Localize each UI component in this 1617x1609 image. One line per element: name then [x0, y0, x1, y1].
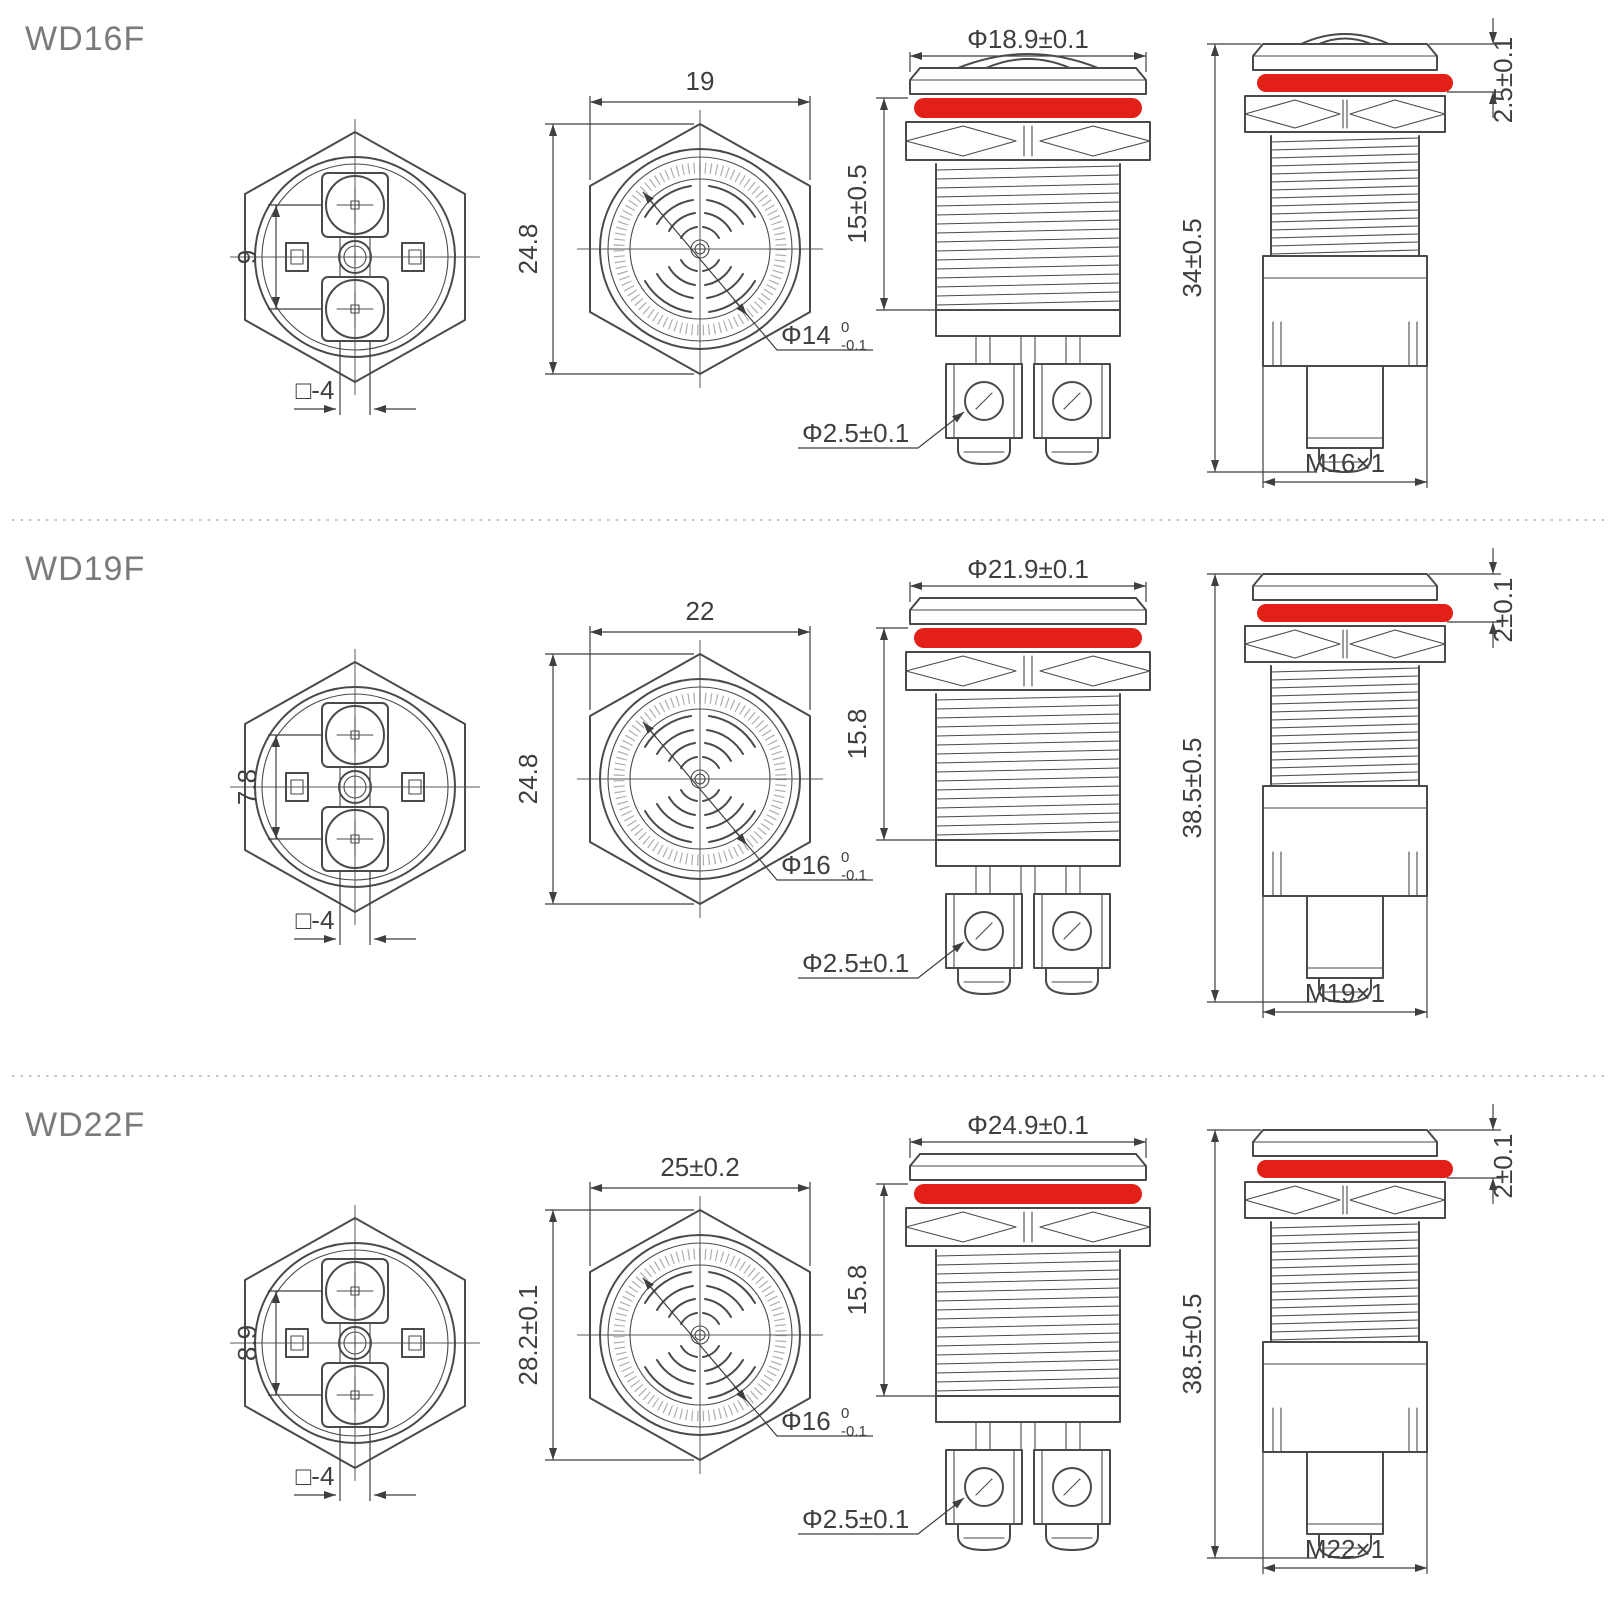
side-view-drawing	[798, 52, 1150, 464]
profile-view-drawing	[1207, 548, 1501, 1018]
dim-sound-hole-dia: Φ16	[781, 1406, 831, 1436]
profile-view-drawing	[1207, 1104, 1501, 1574]
model-title: WD16F	[25, 20, 145, 58]
dim-head-height: 2±0.1	[1488, 1134, 1518, 1199]
dim-width-across-flats: 25±0.2	[660, 1152, 739, 1182]
dim-thread-spec: M19×1	[1305, 978, 1385, 1008]
dim-head-height: 2.5±0.1	[1488, 37, 1518, 124]
model-title: WD22F	[25, 1106, 145, 1144]
dim-terminal-screw-dia: Φ2.5±0.1	[802, 948, 909, 978]
dim-terminal-pitch: 7.8	[232, 769, 262, 805]
dim-total-height: 34±0.5	[1177, 218, 1207, 297]
dim-corner-height: 24.8	[513, 224, 543, 275]
dim-head-height: 2±0.1	[1488, 578, 1518, 643]
dim-sound-hole-dia: Φ16	[781, 850, 831, 880]
model-title: WD19F	[25, 550, 145, 588]
rear-view-drawing	[230, 1205, 480, 1501]
dim-corner-height: 28.2±0.1	[513, 1284, 543, 1385]
dim-sound-hole-dia: Φ14	[781, 320, 831, 350]
dim-terminal-square: □-4	[296, 1461, 335, 1491]
rear-view-drawing	[230, 119, 480, 415]
dim-width-across-flats: 22	[686, 596, 715, 626]
dim-thread-spec: M16×1	[1305, 448, 1385, 478]
side-view-drawing	[798, 582, 1150, 994]
dim-terminal-screw-dia: Φ2.5±0.1	[802, 1504, 909, 1534]
dim-width-across-flats: 19	[686, 66, 715, 96]
dim-total-height: 38.5±0.5	[1177, 1293, 1207, 1394]
dim-head-dia: Φ24.9±0.1	[967, 1110, 1089, 1140]
dim-head-dia: Φ18.9±0.1	[967, 24, 1089, 54]
dim-terminal-square: □-4	[296, 375, 335, 405]
dim-sound-hole-tol-lower: -0.1	[841, 1423, 867, 1440]
dim-terminal-screw-dia: Φ2.5±0.1	[802, 418, 909, 448]
dim-thread-spec: M22×1	[1305, 1534, 1385, 1564]
section-row-3: WD22F 8.9 □-4 25±0.2 28.2±0.1 Φ16 0 -0.1…	[25, 1104, 1518, 1574]
side-view-drawing	[798, 1138, 1150, 1550]
dim-total-height: 38.5±0.5	[1177, 737, 1207, 838]
section-row-2: WD19F 7.8 □-4 22 24.8 Φ16 0 -0.1 Φ21.9±0…	[25, 548, 1518, 1018]
dim-thread-length: 15±0.5	[842, 164, 872, 243]
dim-thread-length: 15.8	[842, 709, 872, 760]
dim-thread-length: 15.8	[842, 1265, 872, 1316]
dim-terminal-pitch: 8.9	[232, 1325, 262, 1361]
technical-drawing-sheet: WD16F 9 □-4 19 24.8 Φ14 0 -0.1 Φ18.9±0.1…	[0, 0, 1617, 1609]
dim-corner-height: 24.8	[513, 754, 543, 805]
section-row-1: WD16F 9 □-4 19 24.8 Φ14 0 -0.1 Φ18.9±0.1…	[25, 18, 1518, 488]
dim-head-dia: Φ21.9±0.1	[967, 554, 1089, 584]
dim-sound-hole-tol-lower: -0.1	[841, 337, 867, 354]
dim-sound-hole-tol-lower: -0.1	[841, 867, 867, 884]
dim-sound-hole-tol-upper: 0	[841, 1405, 849, 1422]
dim-sound-hole-tol-upper: 0	[841, 319, 849, 336]
dome-cap-profile	[1301, 34, 1389, 44]
rear-view-drawing	[230, 649, 480, 945]
profile-view-drawing	[1207, 18, 1501, 488]
dim-terminal-square: □-4	[296, 905, 335, 935]
dim-terminal-pitch: 9	[232, 250, 262, 264]
dim-sound-hole-tol-upper: 0	[841, 849, 849, 866]
